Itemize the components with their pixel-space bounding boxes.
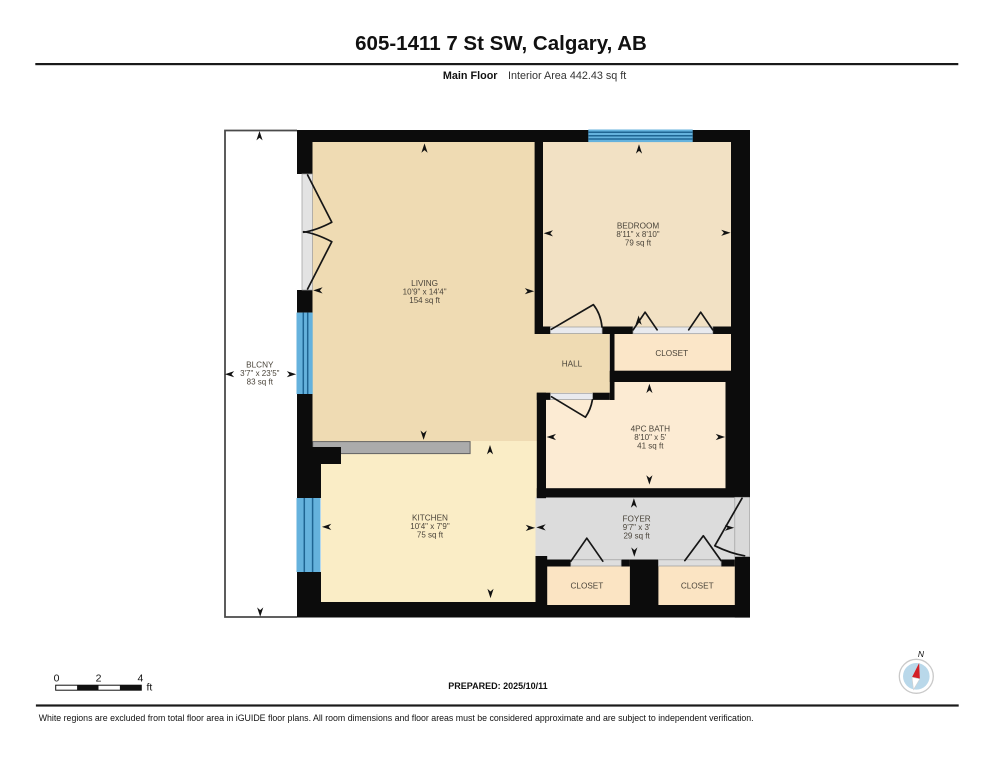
- svg-text:605-1411 7 St SW, Calgary, AB: 605-1411 7 St SW, Calgary, AB: [355, 32, 647, 55]
- svg-text:ft: ft: [147, 682, 153, 694]
- svg-text:HALL: HALL: [562, 359, 583, 368]
- svg-text:White regions are excluded fro: White regions are excluded from total fl…: [39, 713, 754, 723]
- svg-text:0: 0: [54, 672, 60, 684]
- svg-text:2: 2: [96, 672, 102, 684]
- svg-text:CLOSET: CLOSET: [571, 582, 604, 591]
- svg-text:Interior Area 442.43 sq ft: Interior Area 442.43 sq ft: [508, 70, 626, 82]
- svg-text:4: 4: [137, 672, 143, 684]
- svg-text:N: N: [918, 649, 925, 659]
- svg-text:CLOSET: CLOSET: [655, 349, 688, 358]
- svg-text:PREPARED: 2025/10/11: PREPARED: 2025/10/11: [448, 681, 547, 691]
- svg-text:83 sq ft: 83 sq ft: [247, 378, 274, 387]
- svg-text:79 sq ft: 79 sq ft: [625, 239, 652, 248]
- svg-text:75 sq ft: 75 sq ft: [417, 531, 444, 540]
- svg-text:Main Floor: Main Floor: [443, 70, 498, 82]
- svg-text:29 sq ft: 29 sq ft: [623, 531, 650, 540]
- svg-text:CLOSET: CLOSET: [681, 582, 714, 591]
- svg-text:154 sq ft: 154 sq ft: [409, 296, 440, 305]
- svg-text:41 sq ft: 41 sq ft: [637, 441, 664, 450]
